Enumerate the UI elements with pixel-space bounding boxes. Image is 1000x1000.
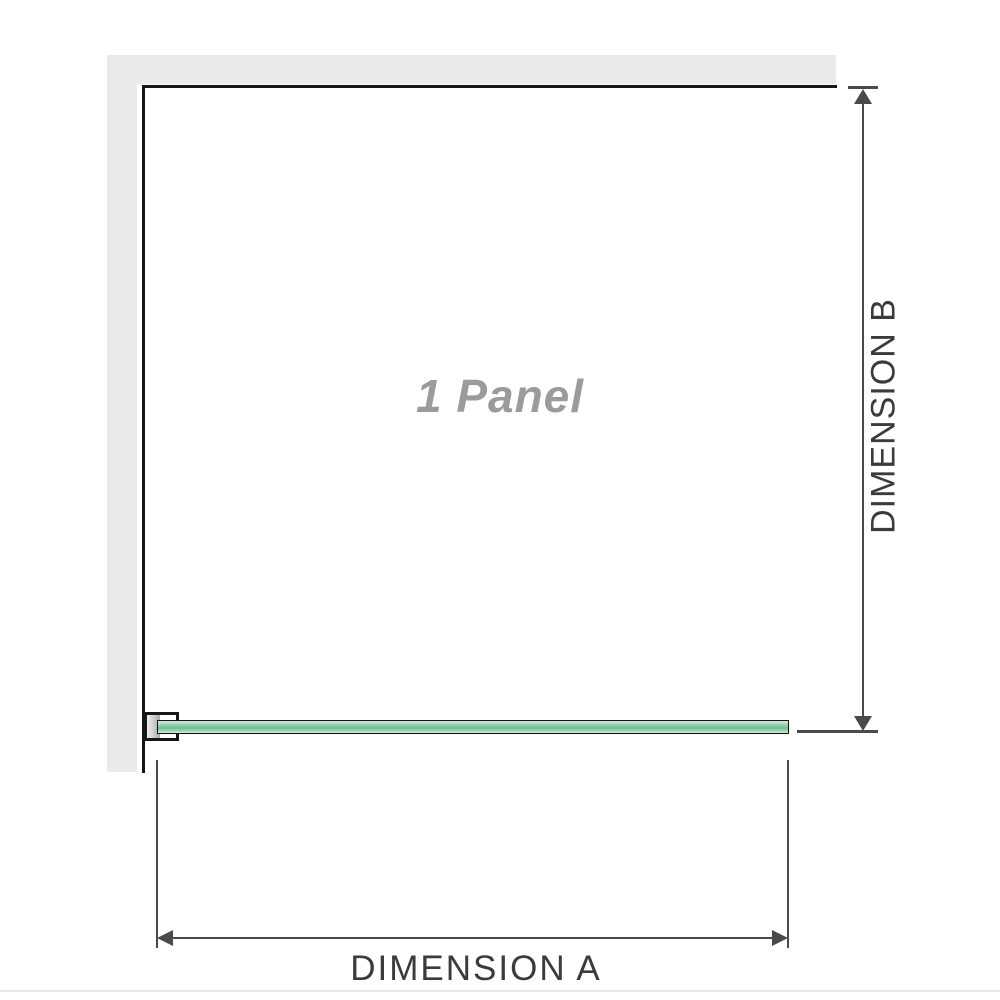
arrow-right-icon [772, 930, 788, 946]
dimension-a-extension-right [787, 760, 790, 948]
page-separator-line [0, 990, 1000, 992]
dimension-a-extension-left [156, 760, 159, 948]
wall-left [107, 55, 137, 772]
arrow-up-icon [854, 89, 872, 104]
panel-label: 1 Panel [416, 369, 584, 423]
dimension-b-label: DIMENSION B [865, 298, 904, 534]
arrow-left-icon [157, 930, 173, 946]
arrow-down-icon [854, 716, 872, 731]
wall-top [107, 55, 836, 84]
glass-panel [157, 720, 789, 734]
shower-screen-diagram: 1 Panel DIMENSION B DIMENSION A [0, 0, 1000, 1000]
dimension-a-label: DIMENSION A [350, 949, 601, 989]
dimension-a-line [165, 937, 780, 940]
wall-inner-edge-top [142, 85, 837, 88]
wall-inner-edge-left [142, 85, 145, 773]
